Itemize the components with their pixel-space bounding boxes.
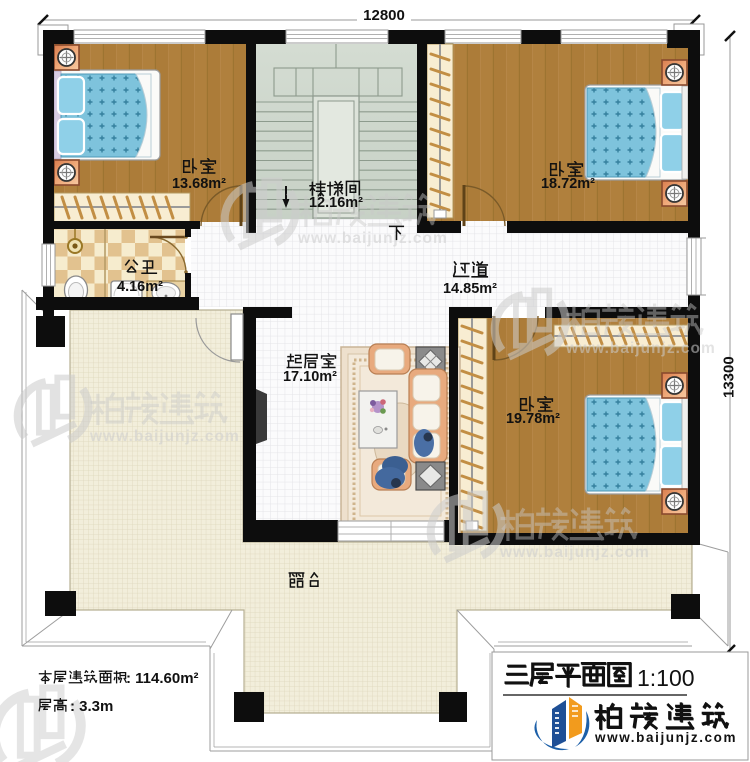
svg-text:12.16m²: 12.16m² <box>309 195 363 211</box>
svg-text:www.baijunjz.com: www.baijunjz.com <box>499 544 650 561</box>
svg-text:www.baijunjz.com: www.baijunjz.com <box>594 730 737 745</box>
svg-text:13.68m²: 13.68m² <box>172 176 226 192</box>
svg-text:: 114.60m²: : 114.60m² <box>126 670 199 687</box>
svg-text:4.16m²: 4.16m² <box>117 279 163 295</box>
svg-text:17.10m²: 17.10m² <box>283 369 337 385</box>
svg-text:1:100: 1:100 <box>637 665 695 691</box>
svg-text:14.85m²: 14.85m² <box>443 281 497 297</box>
svg-text:www.baijunjz.com: www.baijunjz.com <box>89 428 240 445</box>
svg-text:www.baijunjz.com: www.baijunjz.com <box>297 230 448 247</box>
svg-text:www.baijunjz.com: www.baijunjz.com <box>565 340 716 357</box>
svg-text:12800: 12800 <box>363 7 405 24</box>
svg-text:19.78m²: 19.78m² <box>506 411 560 427</box>
svg-text:13300: 13300 <box>721 356 738 398</box>
svg-text:: 3.3m: : 3.3m <box>70 698 113 715</box>
svg-text:18.72m²: 18.72m² <box>541 176 595 192</box>
